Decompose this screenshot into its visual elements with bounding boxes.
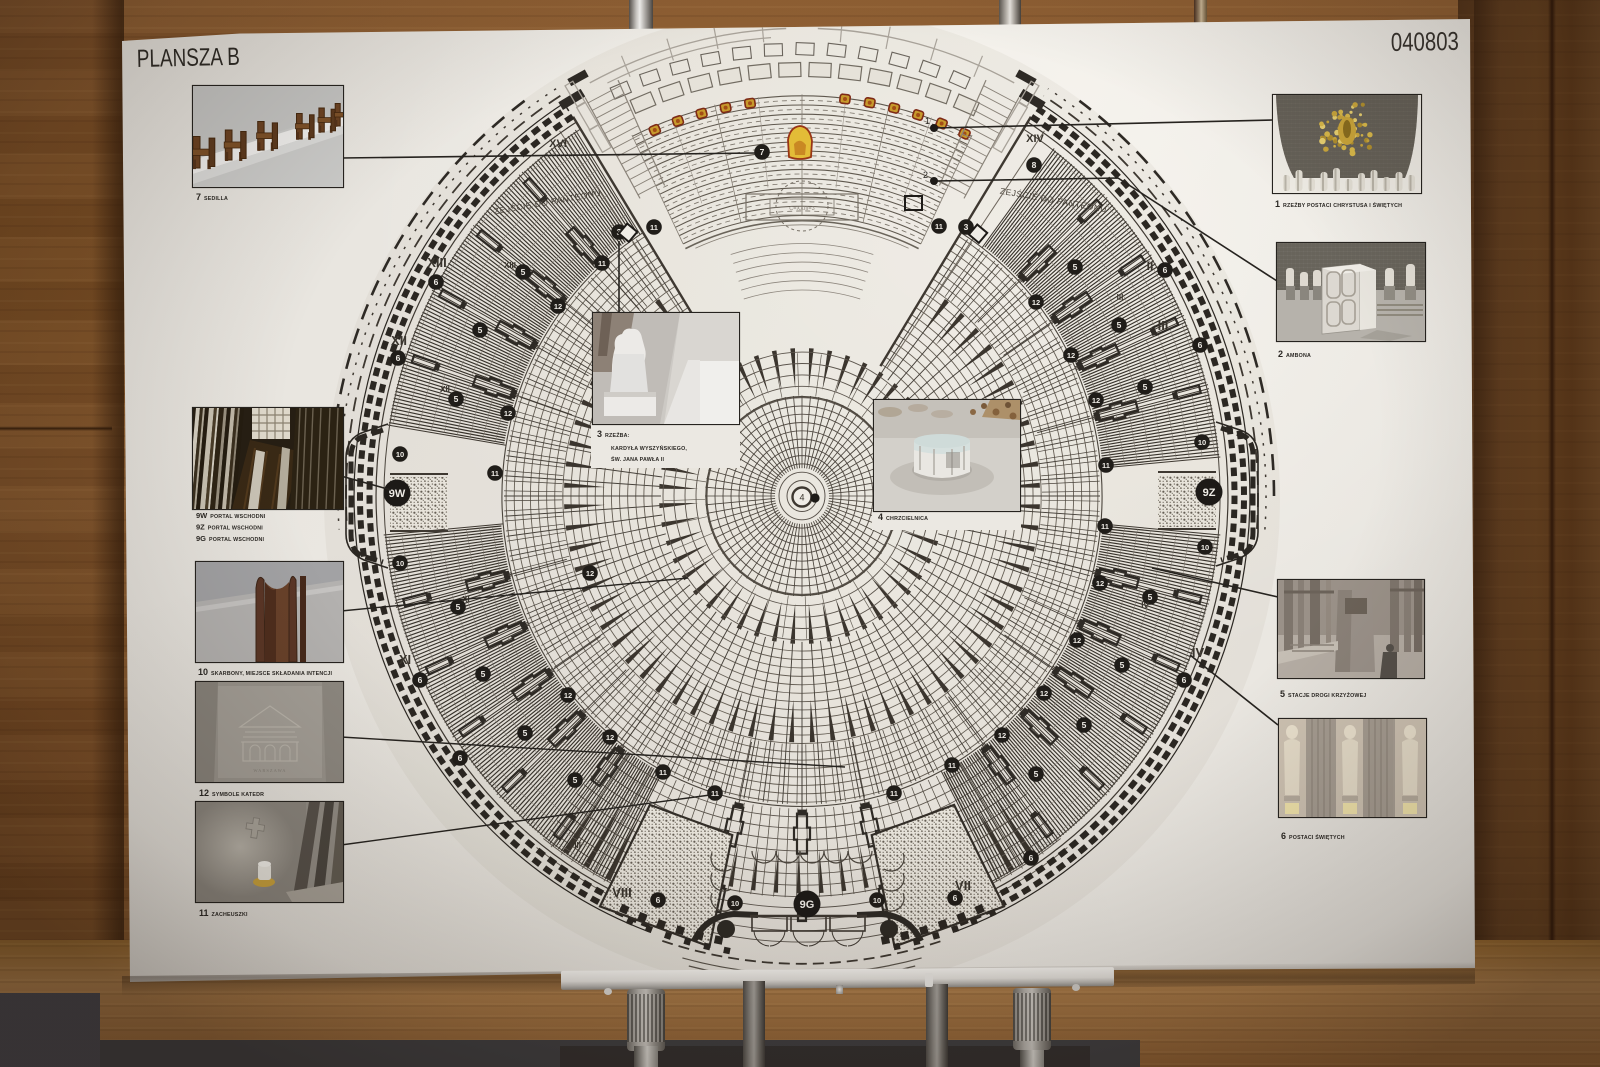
svg-text:VIII: VIII: [612, 885, 632, 900]
svg-text:12: 12: [1032, 298, 1040, 307]
svg-text:9G: 9G: [800, 899, 815, 911]
svg-text:6: 6: [1198, 340, 1203, 350]
svg-text:12: 12: [1067, 351, 1075, 360]
svg-text:6: 6: [434, 277, 439, 287]
svg-text:9GPORTAL WSCHODNI: 9GPORTAL WSCHODNI: [196, 534, 265, 543]
svg-text:8: 8: [1032, 160, 1037, 170]
svg-text:ŚW. JANA PAWŁA II: ŚW. JANA PAWŁA II: [611, 456, 665, 463]
svg-text:10: 10: [873, 896, 881, 905]
svg-text:5: 5: [1082, 720, 1087, 730]
svg-text:11: 11: [659, 768, 667, 777]
svg-text:XII: XII: [391, 333, 407, 348]
svg-text:11: 11: [711, 789, 719, 798]
svg-text:XIII: XIII: [504, 261, 516, 270]
svg-text:2: 2: [923, 170, 928, 180]
svg-text:10: 10: [396, 450, 404, 459]
svg-text:11: 11: [890, 789, 898, 798]
svg-text:9WPORTAL WSCHODNI: 9WPORTAL WSCHODNI: [196, 511, 266, 520]
svg-text:12: 12: [564, 691, 572, 700]
svg-text:10: 10: [396, 559, 404, 568]
svg-text:5: 5: [521, 267, 526, 277]
svg-text:11: 11: [650, 223, 658, 232]
svg-text:5: 5: [1117, 320, 1122, 330]
svg-text:11: 11: [1101, 522, 1109, 531]
svg-text:12: 12: [1092, 396, 1100, 405]
svg-text:XIV: XIV: [1026, 133, 1044, 145]
svg-text:XI: XI: [399, 652, 411, 667]
svg-text:5: 5: [1143, 382, 1148, 392]
svg-text:040803: 040803: [1391, 26, 1460, 57]
svg-text:6POSTACI ŚWIĘTYCH: 6POSTACI ŚWIĘTYCH: [1281, 831, 1345, 841]
svg-text:4: 4: [799, 493, 804, 503]
svg-text:XVI: XVI: [549, 138, 567, 150]
svg-text:9ZPORTAL WSCHODNI: 9ZPORTAL WSCHODNI: [196, 523, 263, 532]
svg-text:2AMBONA: 2AMBONA: [1278, 349, 1311, 359]
svg-text:11: 11: [1102, 461, 1110, 470]
svg-text:VIII: VIII: [569, 841, 581, 850]
svg-text:10: 10: [1201, 543, 1209, 552]
svg-text:10: 10: [731, 899, 739, 908]
svg-text:12: 12: [586, 569, 594, 578]
svg-text:12: 12: [1096, 579, 1104, 588]
svg-text:5STACJE DROGI KRZYŻOWEJ: 5STACJE DROGI KRZYŻOWEJ: [1280, 689, 1366, 699]
svg-text:12: 12: [504, 409, 512, 418]
svg-text:6: 6: [656, 895, 661, 905]
svg-text:11: 11: [935, 222, 943, 231]
svg-text:5: 5: [1120, 660, 1125, 670]
svg-text:III: III: [1117, 293, 1124, 302]
svg-text:11: 11: [948, 761, 956, 770]
svg-text:7SEDILLA: 7SEDILLA: [196, 192, 228, 202]
svg-text:5: 5: [481, 669, 486, 679]
svg-text:5: 5: [1034, 769, 1039, 779]
svg-text:12SYMBOLE KATEDR: 12SYMBOLE KATEDR: [199, 788, 264, 798]
svg-text:XII: XII: [440, 385, 450, 394]
svg-text:10: 10: [1198, 438, 1206, 447]
svg-text:6: 6: [458, 753, 463, 763]
svg-text:5: 5: [573, 775, 578, 785]
svg-text:9W: 9W: [389, 488, 406, 500]
svg-text:5: 5: [523, 728, 528, 738]
svg-text:7: 7: [760, 147, 765, 157]
svg-text:11: 11: [491, 469, 499, 478]
svg-text:12: 12: [1040, 689, 1048, 698]
svg-text:11ZACHEUSZKI: 11ZACHEUSZKI: [199, 908, 248, 918]
svg-text:5: 5: [478, 325, 483, 335]
svg-text:6: 6: [418, 675, 423, 685]
svg-text:5: 5: [1073, 262, 1078, 272]
svg-text:PLANSZA B: PLANSZA B: [137, 43, 241, 73]
svg-text:IV: IV: [1141, 601, 1149, 610]
svg-text:6: 6: [396, 353, 401, 363]
svg-text:VII: VII: [955, 878, 971, 893]
svg-text:6: 6: [953, 893, 958, 903]
svg-text:II: II: [1147, 259, 1154, 273]
svg-text:5: 5: [454, 394, 459, 404]
svg-text:WARSZAWA: WARSZAWA: [253, 768, 286, 773]
svg-text:12: 12: [554, 302, 562, 311]
svg-text:1RZEŹBY POSTACI CHRYSTUSA I ŚW: 1RZEŹBY POSTACI CHRYSTUSA I ŚWIĘTYCH: [1275, 199, 1402, 209]
svg-text:C=XXIII=3: C=XXIII=3: [789, 206, 814, 212]
svg-text:10SKARBONY, MIEJSCE SKŁADANIA: 10SKARBONY, MIEJSCE SKŁADANIA INTENCJI: [198, 667, 333, 677]
svg-text:12: 12: [606, 733, 614, 742]
svg-text:12: 12: [1073, 636, 1081, 645]
svg-text:III: III: [1158, 318, 1169, 333]
svg-text:5: 5: [456, 602, 461, 612]
svg-text:KARDYŁA WYSZYŃSKIEGO,: KARDYŁA WYSZYŃSKIEGO,: [611, 444, 687, 452]
svg-text:6: 6: [1029, 853, 1034, 863]
svg-text:1: 1: [925, 116, 930, 126]
svg-text:XIII: XIII: [427, 255, 447, 270]
svg-text:3: 3: [964, 222, 969, 232]
svg-text:9Z: 9Z: [1203, 487, 1216, 499]
svg-text:6: 6: [1163, 265, 1168, 275]
svg-text:12: 12: [998, 731, 1006, 740]
svg-text:6: 6: [1182, 675, 1187, 685]
svg-text:11: 11: [598, 259, 606, 268]
